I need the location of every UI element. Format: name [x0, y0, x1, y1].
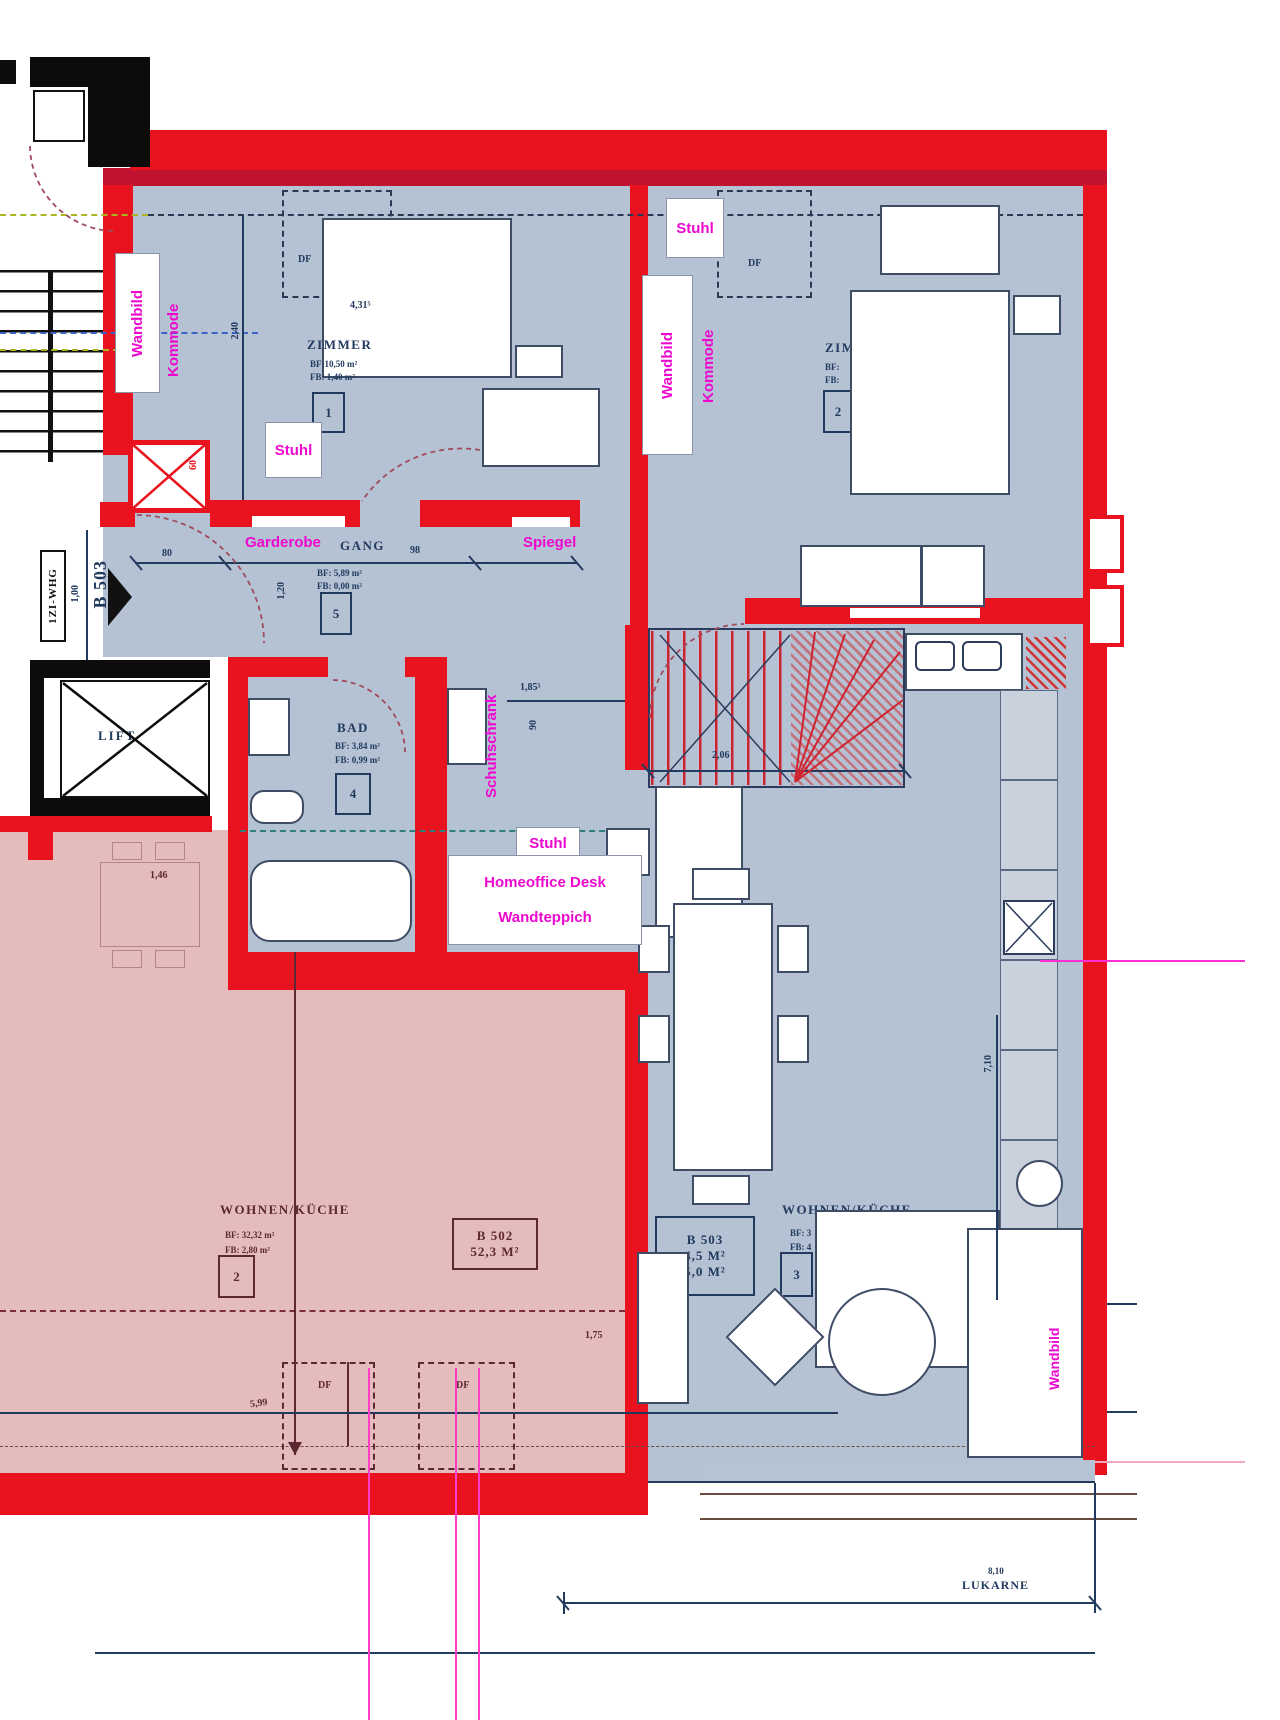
- label-kommode-zimmer1: Kommode: [165, 262, 182, 377]
- corner-diagonal: [100, 58, 148, 167]
- label-spiegel: Spiegel: [523, 534, 576, 551]
- label-stuhl-zimmer1: Stuhl: [265, 422, 322, 478]
- tick-lukarne-2: [1089, 1596, 1101, 1610]
- tick-206-1: [642, 764, 654, 778]
- label-stuhl-wohnen-text: Stuhl: [529, 835, 567, 852]
- label-wandbild-zimmer2: Wandbild: [642, 275, 693, 455]
- tick-gang-4: [571, 556, 583, 570]
- label-wandbild-wohnen: Wandbild: [1046, 1290, 1062, 1390]
- tick-206-2: [899, 764, 911, 778]
- label-homeoffice-box: Homeoffice Desk Wandteppich: [448, 855, 642, 945]
- floor-plan: LIFT DF DF DF DF: [0, 0, 1280, 1720]
- winder-2: [795, 634, 845, 782]
- label-kommode-zimmer2: Kommode: [700, 288, 717, 403]
- label-garderobe: Garderobe: [245, 534, 321, 551]
- door-arc-bad: [333, 680, 405, 752]
- winder-5: [795, 700, 903, 782]
- tick-gang-1: [130, 556, 142, 570]
- label-homeoffice-text: Homeoffice Desk: [484, 874, 606, 891]
- label-stuhl-zimmer1-text: Stuhl: [275, 442, 313, 459]
- winder-3: [795, 640, 874, 782]
- label-wandbild-zimmer1-text: Wandbild: [129, 290, 146, 357]
- label-wandbild-zimmer1: Wandbild: [115, 253, 160, 393]
- tick-gang-3: [469, 556, 481, 570]
- door-arc-zimmer1: [362, 449, 480, 501]
- label-stuhl-zimmer2: Stuhl: [666, 198, 724, 258]
- tick-gang-2: [219, 556, 231, 570]
- tick-lukarne-1: [557, 1596, 569, 1610]
- label-wandteppich-text: Wandteppich: [498, 909, 592, 926]
- label-stuhl-zimmer2-text: Stuhl: [676, 220, 714, 237]
- label-schuhschrank: Schuhschrank: [483, 653, 500, 798]
- winder-4: [795, 652, 900, 782]
- label-wandbild-zimmer2-text: Wandbild: [659, 332, 676, 399]
